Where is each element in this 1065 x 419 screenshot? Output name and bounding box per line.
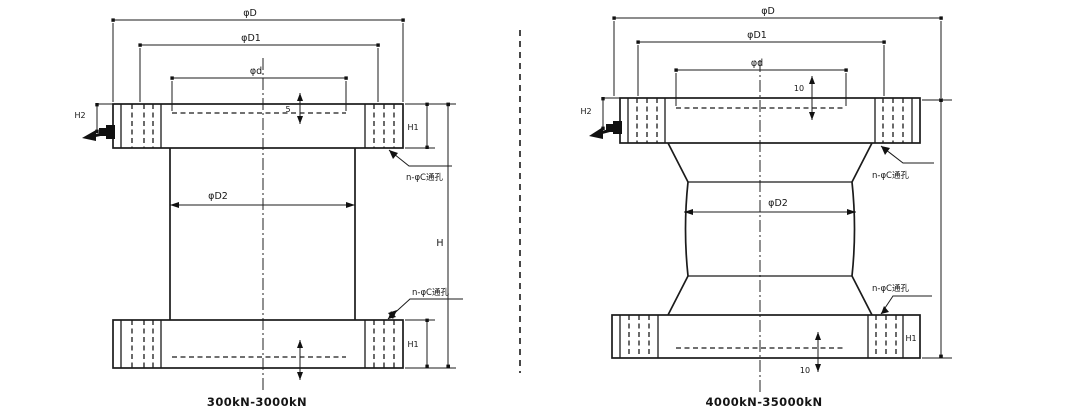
dim-label-recess-top: 10 [794, 84, 804, 93]
dim-label-phi-d-outer: φD [243, 8, 257, 19]
engineering-drawing-page: φD φD1 φd [0, 0, 1065, 419]
dim-h-total [922, 98, 952, 358]
left-caption: 300kN-3000kN [207, 395, 307, 409]
dim-phi-d-outer: φD [612, 6, 942, 98]
dim-label-h2: H2 [74, 111, 85, 120]
hole-note-top-leader: n-φC通孔 [872, 146, 934, 181]
right-diagram: φD φD1 φd [580, 6, 952, 409]
left-diagram: φD φD1 φd [74, 8, 463, 409]
dim-label-recess-bottom: 10 [800, 366, 810, 375]
dim-label-h-total: H [436, 238, 443, 249]
dim-label-h2: H2 [580, 107, 591, 116]
dim-label-phi-d-boss: φd [751, 58, 763, 69]
cable-arrow [589, 127, 603, 139]
dim-label-phi-d2: φD2 [768, 198, 788, 209]
dim-recess-top: 5 [285, 93, 303, 124]
dim-h-total: H [436, 103, 450, 369]
hole-note-bottom-leader: n-φC通孔 [872, 283, 932, 314]
dim-label-phi-d1: φD1 [241, 33, 261, 44]
bottom-flange: H1 [612, 315, 920, 358]
dim-label-phi-d2: φD2 [208, 191, 228, 202]
spool-column [668, 143, 872, 315]
dim-label-h1-bottom: H1 [407, 340, 418, 349]
hole-note-top: n-φC通孔 [406, 172, 443, 183]
hole-note-bottom: n-φC通孔 [412, 287, 449, 298]
dim-phi-d-outer: φD [111, 8, 404, 102]
right-caption: 4000kN-35000kN [706, 395, 823, 409]
dim-h2-cable: H2 [580, 97, 622, 139]
hole-note-top-leader: n-φC通孔 [389, 150, 452, 183]
cable-arrow [82, 130, 96, 141]
bottom-flange [113, 320, 403, 380]
dim-label-phi-d-outer: φD [761, 6, 775, 17]
dim-phi-d2: φD2 [684, 198, 856, 215]
hole-note-bottom-leader: n-φC通孔 [388, 287, 463, 319]
hole-note-top: n-φC通孔 [872, 170, 909, 181]
dim-label-h1-top: H1 [407, 123, 418, 132]
dim-recess-bottom: 10 [800, 332, 821, 375]
dim-label-phi-d-boss: φd [250, 66, 262, 77]
dim-label-h1-bottom: H1 [905, 334, 916, 343]
dim-label-recess-top: 5 [285, 105, 290, 114]
load-cell-dimension-drawing: φD φD1 φd [0, 0, 1065, 419]
dim-h2-cable: H2 [74, 103, 115, 141]
hole-note-bottom: n-φC通孔 [872, 283, 909, 294]
dim-label-phi-d1: φD1 [747, 30, 767, 41]
top-flange [620, 98, 920, 143]
top-flange [113, 104, 403, 148]
